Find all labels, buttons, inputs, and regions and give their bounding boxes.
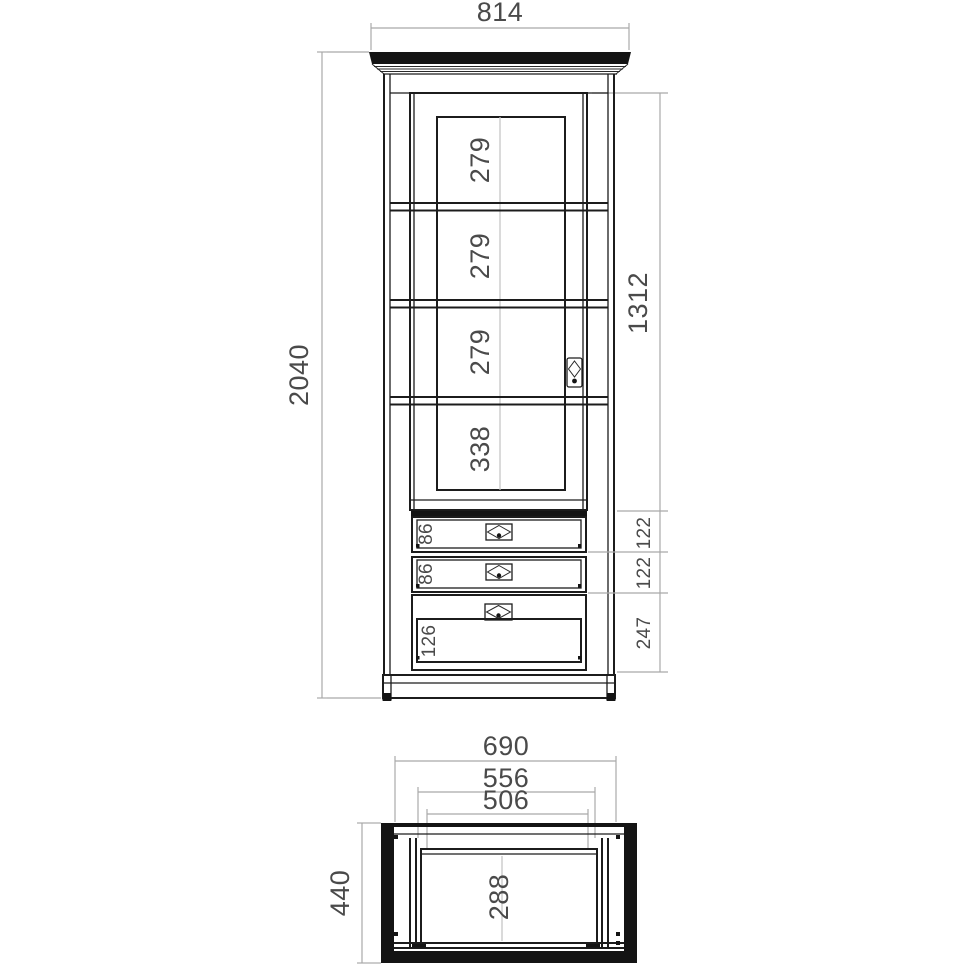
front-view: 814 2040 1312 bbox=[284, 0, 668, 701]
shelves bbox=[390, 203, 608, 405]
dim-label-drawer1-inner: 86 bbox=[416, 523, 437, 545]
connector-dot bbox=[616, 835, 620, 839]
door-bottom-shadow bbox=[411, 511, 587, 516]
dim-label-depth: 440 bbox=[325, 870, 355, 917]
glass-door bbox=[410, 93, 587, 510]
frame-right-edge bbox=[624, 823, 637, 963]
frame-front-edge bbox=[381, 823, 637, 827]
door-handle bbox=[567, 358, 582, 387]
dim-label-drawer2-inner: 86 bbox=[416, 563, 437, 585]
keyhole-icon bbox=[572, 379, 577, 384]
drawer-knob bbox=[485, 604, 512, 620]
left-foot-base bbox=[383, 693, 391, 701]
dim-label-shelf-gap-3: 279 bbox=[465, 329, 495, 376]
dim-label-drawer1-outer: 122 bbox=[634, 517, 655, 550]
connector-dot bbox=[616, 932, 620, 936]
dim-label-inner-depth: 288 bbox=[484, 874, 514, 921]
dim-label-shelf-gap-4: 338 bbox=[465, 426, 495, 473]
dim-inner-width: 506 bbox=[427, 785, 588, 849]
corner-dot bbox=[578, 544, 582, 548]
cornice-crown bbox=[369, 52, 631, 64]
dim-depth: 440 bbox=[325, 823, 381, 963]
corner-dot bbox=[578, 584, 582, 588]
dim-label-shelf-gap-1: 279 bbox=[465, 137, 495, 184]
shelf-gap-labels: 279 279 279 338 bbox=[465, 137, 495, 473]
corner-dot bbox=[578, 656, 582, 660]
drawer-2: 86 bbox=[412, 557, 586, 592]
drawer-panel bbox=[417, 619, 581, 662]
top-view: 690 556 506 440 bbox=[325, 731, 637, 963]
plinth bbox=[383, 675, 615, 701]
plan-interior: 288 bbox=[394, 834, 624, 948]
glass-pane-frame bbox=[437, 117, 565, 490]
foot-mark bbox=[412, 944, 426, 948]
right-foot-base bbox=[607, 693, 615, 701]
dim-label-carcass-width: 690 bbox=[483, 731, 530, 761]
technical-drawing-page: 814 2040 1312 bbox=[0, 0, 970, 971]
dim-overall-height: 2040 bbox=[284, 52, 381, 698]
drawer-knob bbox=[486, 524, 512, 540]
dim-label-door-height: 1312 bbox=[623, 272, 653, 334]
connector-dot bbox=[394, 835, 398, 839]
connector-dot bbox=[616, 941, 620, 945]
cornice bbox=[369, 52, 631, 74]
frame-back-edge bbox=[381, 951, 637, 963]
dim-label-drawer3-inner: 126 bbox=[419, 625, 440, 658]
knob-icon bbox=[497, 573, 501, 577]
cabinet-dimension-drawing: 814 2040 1312 bbox=[0, 0, 970, 971]
dim-label-drawer2-outer: 122 bbox=[634, 557, 655, 590]
foot-mark bbox=[586, 944, 600, 948]
drawer-3: 126 bbox=[412, 595, 586, 670]
dim-label-drawer3-outer: 247 bbox=[634, 617, 655, 650]
dim-door-height: 1312 bbox=[592, 93, 668, 511]
dim-label-inner-width: 506 bbox=[483, 785, 530, 815]
dim-label-shelf-gap-2: 279 bbox=[465, 233, 495, 280]
dim-label-overall-height: 2040 bbox=[284, 344, 314, 406]
connector-dot bbox=[394, 932, 398, 936]
dim-overall-width: 814 bbox=[371, 0, 629, 50]
dim-label-overall-width: 814 bbox=[477, 0, 524, 27]
drawer-knob bbox=[486, 564, 512, 580]
escutcheon-diamond bbox=[569, 361, 581, 377]
plinth-board bbox=[383, 675, 615, 698]
knob-icon bbox=[496, 613, 500, 617]
knob-icon bbox=[497, 533, 501, 537]
drawer-1: 86 bbox=[412, 517, 586, 552]
frame-left-edge bbox=[381, 823, 394, 963]
dim-drawer-heights: 122 122 247 bbox=[588, 511, 668, 672]
